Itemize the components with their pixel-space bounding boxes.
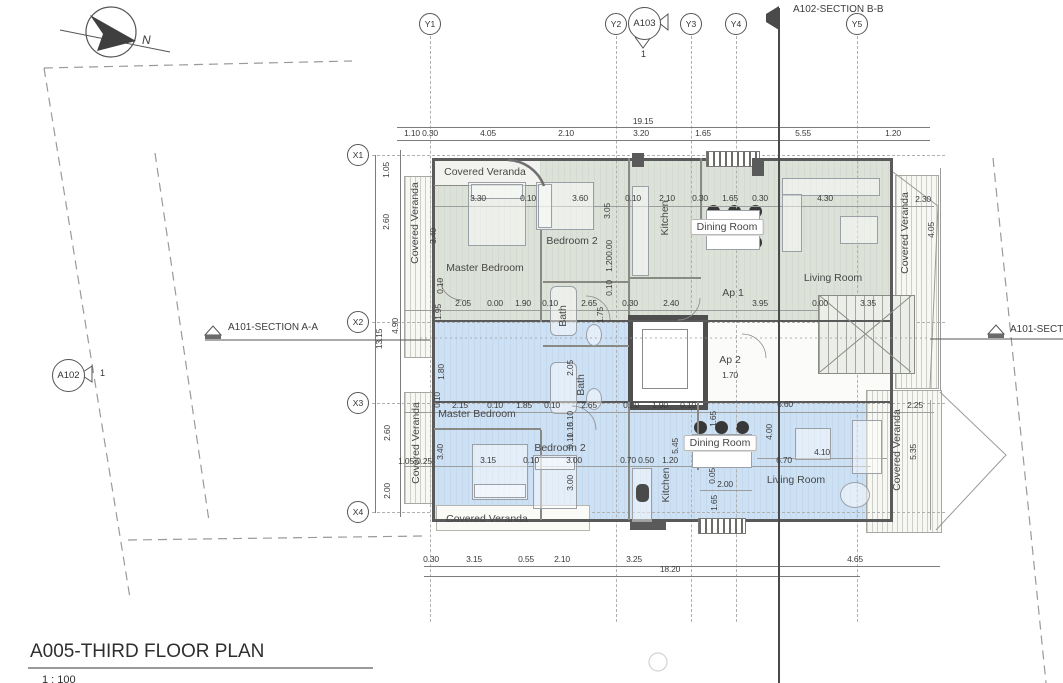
site-boundary bbox=[44, 61, 352, 68]
room-label: Master Bedroom bbox=[438, 408, 516, 420]
dim-label: 1.80 bbox=[436, 364, 446, 380]
room-label: Covered Veranda bbox=[446, 513, 528, 525]
room-label: Covered Veranda bbox=[899, 192, 911, 274]
dim-label: 5.45 bbox=[670, 438, 680, 454]
dim-label: 0.10 bbox=[542, 298, 558, 308]
dim-label: 1.90 bbox=[652, 400, 668, 410]
dim-label: 2.00 bbox=[717, 479, 733, 489]
dim-label: 18.20 bbox=[660, 564, 680, 574]
dim-label: 1.20 bbox=[885, 128, 901, 138]
dim-label: 19.15 bbox=[633, 116, 653, 126]
dim-label: 4.30 bbox=[817, 193, 833, 203]
dim-label: 0.30 bbox=[422, 128, 438, 138]
dim-label: 2.10 bbox=[558, 128, 574, 138]
dim-label: 2.60 bbox=[381, 214, 391, 230]
room-label: Covered Veranda bbox=[444, 166, 526, 178]
callout-a102-label: A102 bbox=[57, 370, 79, 381]
dim-label: 2.05 bbox=[565, 360, 575, 376]
room-label: Ap 1 bbox=[722, 287, 744, 299]
dim-label: 1.85 bbox=[516, 400, 532, 410]
dim-label: 3.20 bbox=[633, 128, 649, 138]
room-label: Bedroom 2 bbox=[546, 235, 597, 247]
callout-a102: A102 bbox=[52, 359, 85, 392]
dim-label: 5.55 bbox=[795, 128, 811, 138]
linework-layer bbox=[0, 0, 1063, 683]
door-arc bbox=[678, 298, 700, 320]
floor-plan-sheet: A102-SECTION B-B A101-SECTION A-A A101-S… bbox=[0, 0, 1063, 683]
dim-label: 1.90 bbox=[515, 298, 531, 308]
title-underline bbox=[28, 667, 373, 669]
room-label: Covered Veranda bbox=[409, 182, 421, 264]
room-label: Bath bbox=[557, 305, 569, 327]
dim-label: 3.00 bbox=[566, 455, 582, 465]
section-bb-line bbox=[778, 8, 780, 683]
dim-label: 2.25 bbox=[907, 400, 923, 410]
dim-label: 0.00 bbox=[487, 298, 503, 308]
room-label: Bedroom 2 bbox=[534, 442, 585, 454]
dim-label: 0.05 bbox=[707, 468, 717, 484]
grid-bubble-y5: Y5 bbox=[846, 13, 868, 35]
dim-label: 1.05 bbox=[381, 162, 391, 178]
section-aa-right-label: A101-SECTION A-A bbox=[1010, 324, 1063, 335]
grid-bubble-x1: X1 bbox=[347, 144, 369, 166]
dim-label: 2.10 bbox=[554, 554, 570, 564]
dim-label: 3.40 bbox=[428, 228, 438, 244]
sheet-title: A005-THIRD FLOOR PLAN bbox=[30, 641, 264, 663]
site-boundary bbox=[993, 158, 1046, 683]
grid-bubble-x4: X4 bbox=[347, 501, 369, 523]
dim-label: 3.15 bbox=[466, 554, 482, 564]
dim-label: 3.30 bbox=[470, 193, 486, 203]
dim-label: 4.90 bbox=[390, 318, 400, 334]
room-label: Living Room bbox=[767, 474, 825, 486]
room-label: Dining Room bbox=[684, 435, 757, 451]
room-label: Dining Room bbox=[691, 219, 764, 235]
grid-bubble-y4: Y4 bbox=[725, 13, 747, 35]
dim-label: 1.95 bbox=[433, 304, 443, 320]
dim-label: 1.65 bbox=[722, 193, 738, 203]
dim-label: 1.20 bbox=[662, 455, 678, 465]
room-label: Kitchen bbox=[660, 467, 672, 502]
grid-bubble-y1: Y1 bbox=[419, 13, 441, 35]
dim-label: 4.00 bbox=[764, 424, 774, 440]
grid-bubble-y3: Y3 bbox=[680, 13, 702, 35]
dim-label: 0.30 bbox=[752, 193, 768, 203]
dim-label: 3.60 bbox=[572, 193, 588, 203]
site-boundary bbox=[44, 68, 130, 598]
dim-label: 2.60 bbox=[382, 425, 392, 441]
dim-label: 0.10 bbox=[625, 193, 641, 203]
sheet-scale: 1 : 100 bbox=[42, 674, 76, 683]
room-label: Master Bedroom bbox=[446, 262, 524, 274]
dim-label: 4.05 bbox=[926, 222, 936, 238]
site-boundary bbox=[128, 536, 424, 540]
callout-a103-num: 1 bbox=[641, 49, 646, 59]
dim-label: 4.65 bbox=[847, 554, 863, 564]
dim-label: 0.00 bbox=[604, 240, 614, 256]
dim-label: 0.50 bbox=[638, 455, 654, 465]
dim-label: 2.05 bbox=[455, 298, 471, 308]
dim-label: 3.25 bbox=[626, 554, 642, 564]
dim-label: 0.10 bbox=[544, 400, 560, 410]
room-label: Covered Veranda bbox=[891, 409, 903, 491]
room-label: Living Room bbox=[804, 272, 862, 284]
dim-label: 1.65 bbox=[709, 495, 719, 511]
dim-label: 0.10 bbox=[520, 193, 536, 203]
section-bb-label: A102-SECTION B-B bbox=[793, 4, 884, 15]
dim-label: 0.10 bbox=[680, 400, 696, 410]
dim-label: 3.00 bbox=[565, 475, 575, 491]
callout-a102-num: 1 bbox=[100, 368, 105, 378]
dim-label: 4.05 bbox=[480, 128, 496, 138]
setback-line bbox=[155, 153, 209, 521]
dim-label: 1.65 bbox=[695, 128, 711, 138]
dim-label: 0.10 bbox=[435, 278, 445, 294]
dim-label: 1.70 bbox=[722, 370, 738, 380]
dim-label: 0.30 bbox=[692, 193, 708, 203]
dim-label: 0.10 bbox=[604, 280, 614, 296]
dim-label: 3.40 bbox=[435, 444, 445, 460]
dim-label: 1.20 bbox=[604, 256, 614, 272]
dim-label: 0.55 bbox=[518, 554, 534, 564]
callout-a103: A103 bbox=[628, 7, 661, 40]
grid-bubble-y2: Y2 bbox=[605, 13, 627, 35]
dim-label: 0.30 bbox=[423, 554, 439, 564]
dim-label: 13.15 bbox=[374, 329, 384, 349]
dim-label: 3.35 bbox=[860, 298, 876, 308]
dim-label: 0.10 bbox=[432, 392, 442, 408]
balcony-edge-lower-right bbox=[936, 392, 1006, 530]
callout-a103-label: A103 bbox=[633, 18, 655, 29]
dim-label: 6.70 bbox=[776, 455, 792, 465]
grid-bubble-x3: X3 bbox=[347, 392, 369, 414]
dim-label: 3.15 bbox=[480, 455, 496, 465]
room-label: Bath bbox=[575, 374, 587, 396]
north-label: N bbox=[142, 33, 151, 47]
dim-label: 4.10 bbox=[814, 447, 830, 457]
room-label: Ap 2 bbox=[719, 354, 741, 366]
dim-label: 0.00 bbox=[812, 298, 828, 308]
dim-label: 0.10 bbox=[523, 455, 539, 465]
room-label: Kitchen bbox=[659, 200, 671, 235]
cut-bubble bbox=[649, 653, 667, 671]
dim-label: 0.30 bbox=[622, 298, 638, 308]
dim-label: 0.70 bbox=[620, 455, 636, 465]
dim-label: 6.60 bbox=[777, 399, 793, 409]
north-arrow bbox=[60, 7, 170, 57]
dim-label: 1.65 bbox=[708, 411, 718, 427]
dim-label: 3.95 bbox=[752, 298, 768, 308]
grid-bubble-x2: X2 bbox=[347, 311, 369, 333]
dim-label: 5.35 bbox=[908, 444, 918, 460]
dim-label: 2.65 bbox=[581, 400, 597, 410]
dim-label: 0.20 bbox=[623, 400, 639, 410]
dim-label: 1.10 bbox=[404, 128, 420, 138]
dim-label: 2.30 bbox=[915, 194, 931, 204]
dim-label: 1.75 bbox=[595, 307, 605, 323]
room-label: Covered Veranda bbox=[410, 402, 422, 484]
dim-label: 2.00 bbox=[382, 483, 392, 499]
dim-label: 3.05 bbox=[602, 203, 612, 219]
section-aa-left-label: A101-SECTION A-A bbox=[228, 322, 318, 333]
dim-label: 2.40 bbox=[663, 298, 679, 308]
